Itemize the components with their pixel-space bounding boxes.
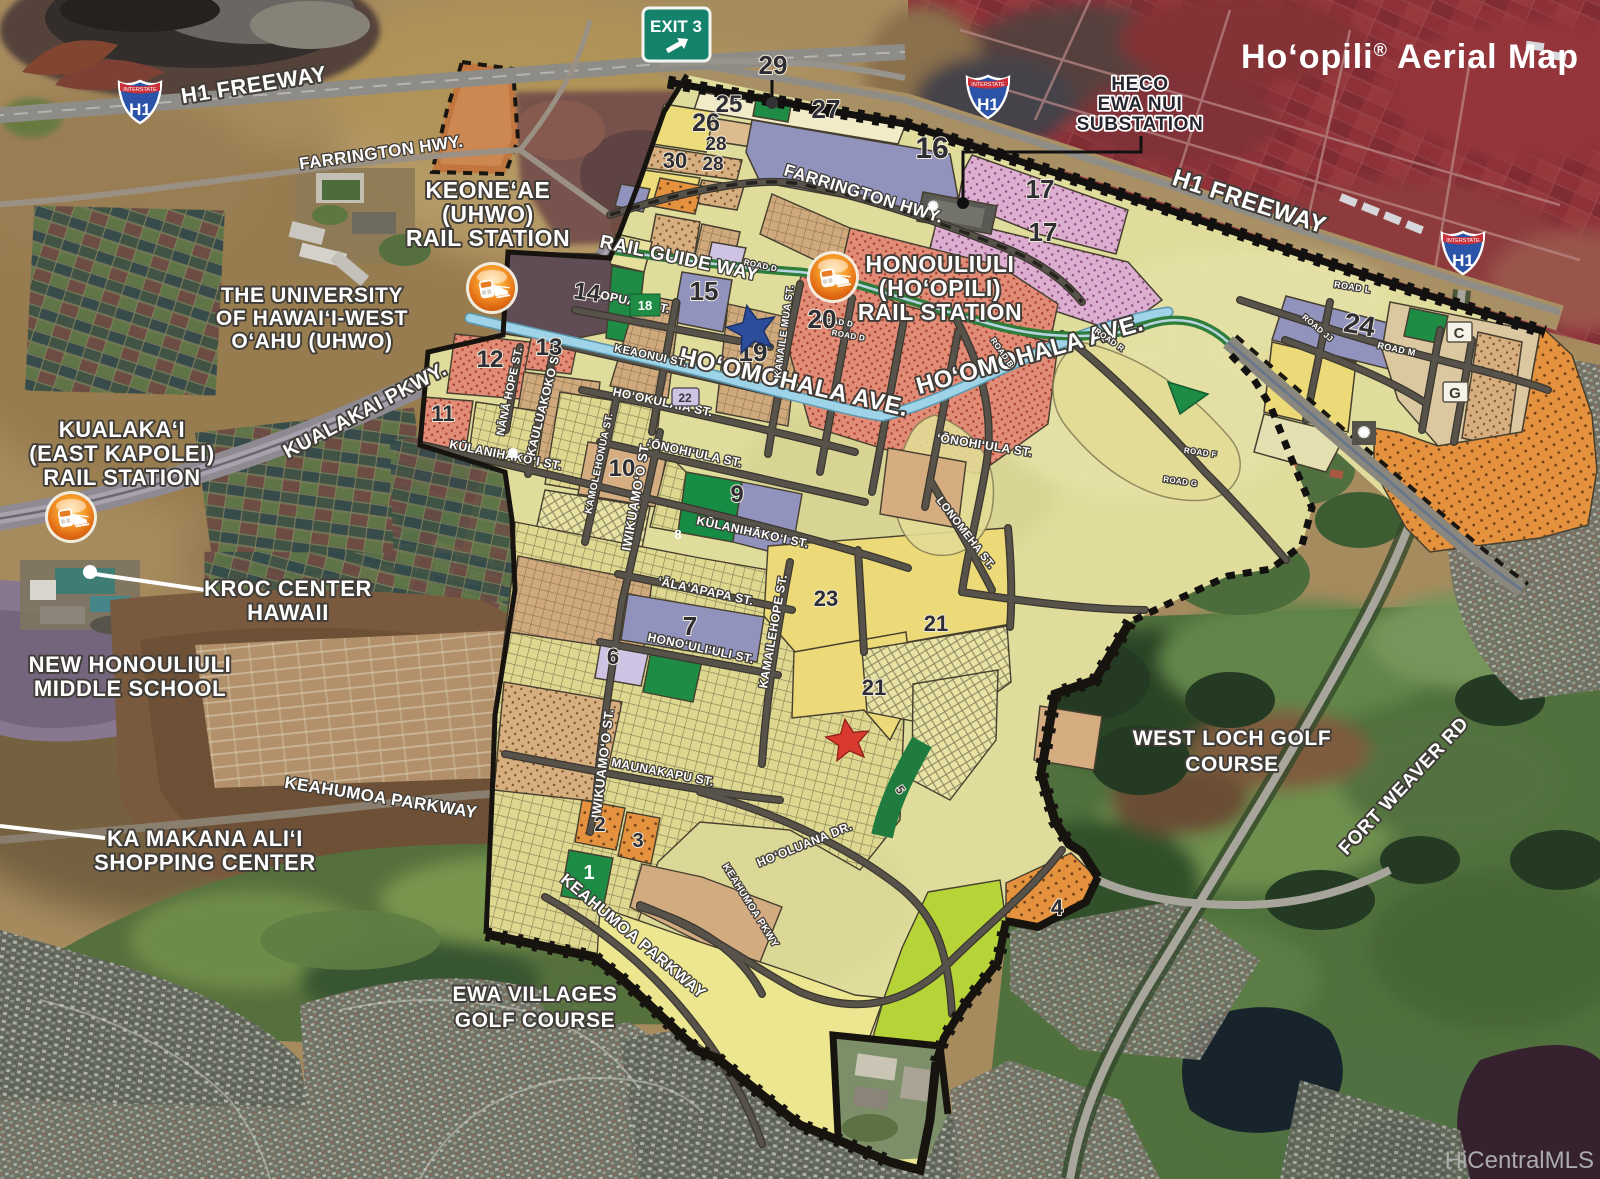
svg-text:26: 26 — [692, 109, 720, 137]
svg-text:✺: ✺ — [1357, 425, 1370, 442]
svg-text:✺: ✺ — [927, 198, 939, 214]
svg-text:KEONE‘AE: KEONE‘AE — [426, 177, 551, 203]
svg-text:6: 6 — [607, 644, 619, 669]
svg-text:23: 23 — [814, 586, 838, 611]
svg-text:H1: H1 — [129, 100, 151, 119]
svg-text:21: 21 — [862, 675, 886, 700]
svg-text:WEST LOCH GOLF: WEST LOCH GOLF — [1133, 727, 1332, 750]
svg-text:INTERSTATE: INTERSTATE — [123, 87, 157, 93]
svg-text:EWA VILLAGES: EWA VILLAGES — [452, 983, 617, 1006]
svg-text:(UHWO): (UHWO) — [442, 201, 534, 227]
svg-text:11: 11 — [431, 401, 454, 426]
svg-text:RAIL STATION: RAIL STATION — [858, 299, 1022, 325]
svg-text:(EAST KAPOLEI): (EAST KAPOLEI) — [29, 441, 215, 466]
svg-text:30: 30 — [663, 148, 687, 173]
svg-text:7: 7 — [683, 611, 697, 641]
svg-text:12: 12 — [477, 346, 504, 373]
svg-text:THE UNIVERSITY: THE UNIVERSITY — [221, 284, 403, 307]
svg-text:21: 21 — [924, 611, 948, 636]
svg-text:16: 16 — [915, 132, 948, 165]
svg-text:28: 28 — [705, 134, 726, 155]
svg-text:8: 8 — [674, 527, 681, 542]
svg-text:KUALAKA‘I: KUALAKA‘I — [59, 417, 185, 442]
svg-text:24: 24 — [1342, 307, 1378, 343]
svg-text:RAIL STATION: RAIL STATION — [43, 465, 201, 490]
svg-text:14: 14 — [572, 277, 603, 308]
svg-text:22: 22 — [678, 391, 692, 405]
svg-text:OF HAWAI‘I-WEST: OF HAWAI‘I-WEST — [216, 307, 408, 330]
svg-text:SHOPPING CENTER: SHOPPING CENTER — [94, 850, 316, 875]
svg-text:18: 18 — [638, 298, 652, 313]
svg-text:GOLF COURSE: GOLF COURSE — [455, 1009, 616, 1032]
svg-text:2: 2 — [594, 814, 605, 836]
svg-text:C: C — [1454, 325, 1465, 342]
svg-text:17: 17 — [1026, 174, 1055, 204]
svg-text:20: 20 — [808, 304, 837, 334]
svg-text:1: 1 — [583, 862, 594, 884]
svg-text:Ho‘opili® Aerial Map: Ho‘opili® Aerial Map — [1241, 38, 1579, 76]
svg-text:10: 10 — [609, 455, 636, 482]
svg-text:NEW HONOULIULI: NEW HONOULIULI — [29, 652, 232, 677]
svg-text:G: G — [1449, 385, 1461, 402]
svg-text:COURSE: COURSE — [1185, 753, 1278, 776]
svg-text:HECO: HECO — [1111, 74, 1168, 95]
svg-text:KROC CENTER: KROC CENTER — [204, 576, 372, 601]
svg-text:KA MAKANA ALI‘I: KA MAKANA ALI‘I — [107, 826, 303, 851]
svg-text:27: 27 — [812, 94, 841, 124]
svg-text:4: 4 — [1051, 895, 1064, 920]
svg-text:SUBSTATION: SUBSTATION — [1077, 114, 1204, 135]
svg-text:MIDDLE SCHOOL: MIDDLE SCHOOL — [34, 676, 226, 701]
svg-text:HAWAII: HAWAII — [247, 600, 329, 625]
svg-text:9: 9 — [730, 481, 743, 508]
svg-text:28: 28 — [702, 154, 723, 175]
svg-text:HONOULIULI: HONOULIULI — [865, 251, 1014, 277]
svg-text:(HO‘OPILI): (HO‘OPILI) — [879, 275, 1001, 301]
svg-text:17: 17 — [1029, 217, 1058, 247]
svg-text:15: 15 — [690, 276, 719, 306]
svg-text:✺: ✺ — [507, 445, 519, 461]
svg-text:29: 29 — [759, 50, 788, 80]
svg-text:13: 13 — [536, 334, 563, 361]
svg-text:O‘AHU (UHWO): O‘AHU (UHWO) — [231, 330, 392, 353]
svg-text:RAIL STATION: RAIL STATION — [406, 225, 570, 251]
svg-text:EWA NUI: EWA NUI — [1098, 94, 1183, 115]
svg-text:EXIT 3: EXIT 3 — [650, 17, 702, 36]
svg-text:3: 3 — [632, 830, 643, 852]
svg-text:HiCentralMLS: HiCentralMLS — [1445, 1147, 1594, 1174]
